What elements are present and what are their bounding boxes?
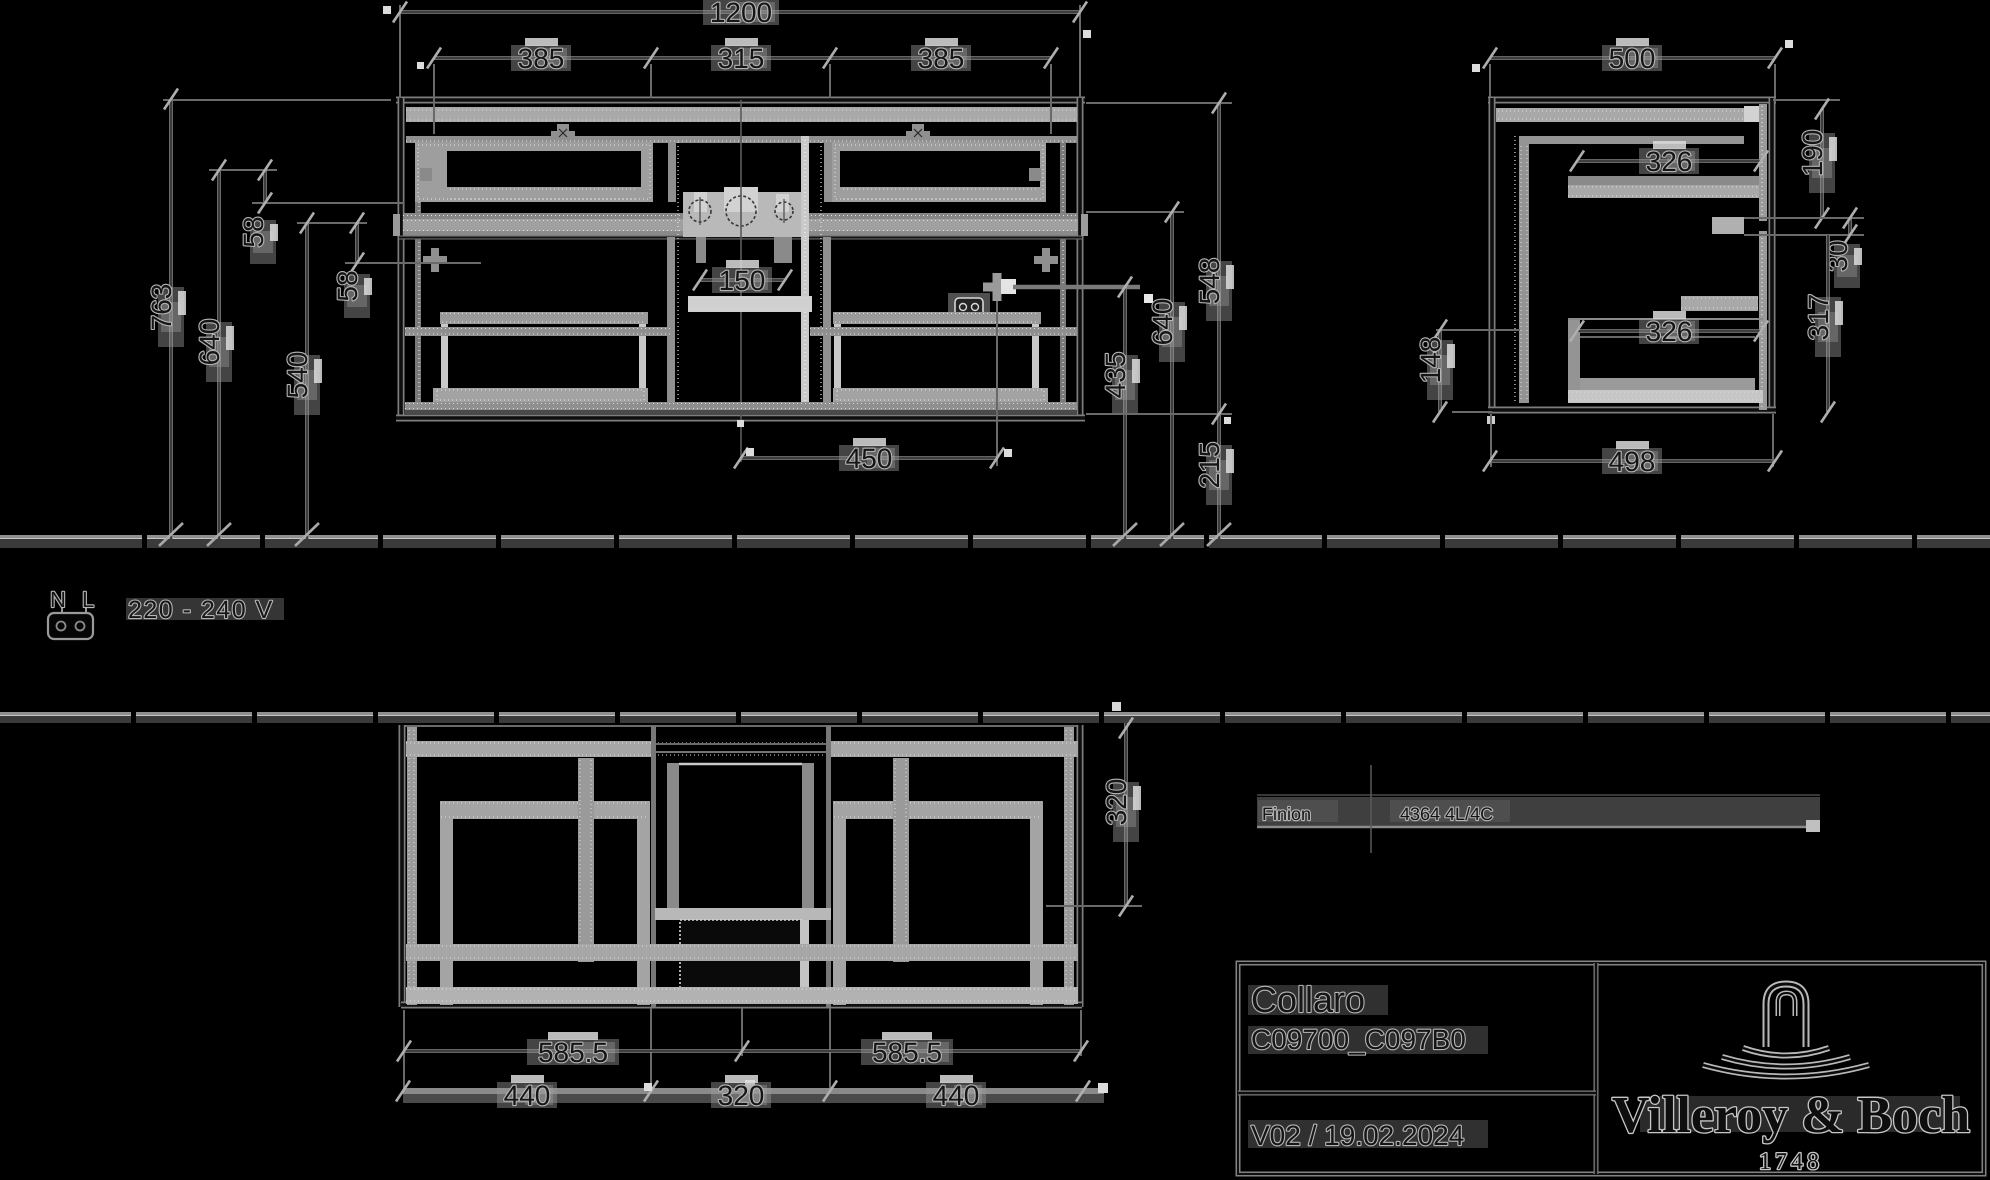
svg-text:Villeroy & Boch: Villeroy & Boch <box>1612 1087 1970 1144</box>
svg-text:326: 326 <box>1646 316 1693 347</box>
svg-text:640: 640 <box>1147 299 1178 346</box>
svg-text:440: 440 <box>933 1080 980 1111</box>
svg-text:450: 450 <box>846 443 893 474</box>
svg-text:317: 317 <box>1803 294 1834 341</box>
svg-text:Finion: Finion <box>1262 804 1311 824</box>
svg-text:440: 440 <box>504 1080 551 1111</box>
svg-text:315: 315 <box>718 43 765 74</box>
svg-text:1748: 1748 <box>1759 1149 1823 1175</box>
svg-text:190: 190 <box>1797 130 1828 177</box>
svg-text:L: L <box>82 587 94 612</box>
svg-text:585.5: 585.5 <box>538 1037 608 1068</box>
svg-text:C09700_C097B0: C09700_C097B0 <box>1251 1024 1466 1055</box>
svg-text:1200: 1200 <box>710 0 772 28</box>
svg-text:326: 326 <box>1646 146 1693 177</box>
svg-text:150: 150 <box>719 265 766 296</box>
svg-text:220 - 240 V: 220 - 240 V <box>128 596 274 624</box>
svg-text:585.5: 585.5 <box>872 1037 942 1068</box>
svg-text:Collaro: Collaro <box>1251 979 1365 1020</box>
svg-text:385: 385 <box>918 43 965 74</box>
svg-text:320: 320 <box>718 1080 765 1111</box>
svg-text:320: 320 <box>1101 779 1132 826</box>
svg-text:148: 148 <box>1415 337 1446 384</box>
svg-text:500: 500 <box>1609 43 1656 74</box>
svg-text:N: N <box>50 587 66 612</box>
svg-text:548: 548 <box>1194 258 1225 305</box>
svg-text:540: 540 <box>282 352 313 399</box>
svg-text:640: 640 <box>194 319 225 366</box>
svg-text:435: 435 <box>1100 352 1131 399</box>
svg-text:498: 498 <box>1609 446 1656 477</box>
svg-text:58: 58 <box>332 270 363 301</box>
svg-text:385: 385 <box>518 43 565 74</box>
svg-text:4364 4L/4C: 4364 4L/4C <box>1400 804 1493 824</box>
svg-text:V02 / 19.02.2024: V02 / 19.02.2024 <box>1251 1120 1464 1151</box>
svg-text:763: 763 <box>146 284 177 331</box>
svg-text:215: 215 <box>1194 442 1225 489</box>
svg-text:58: 58 <box>238 216 269 247</box>
